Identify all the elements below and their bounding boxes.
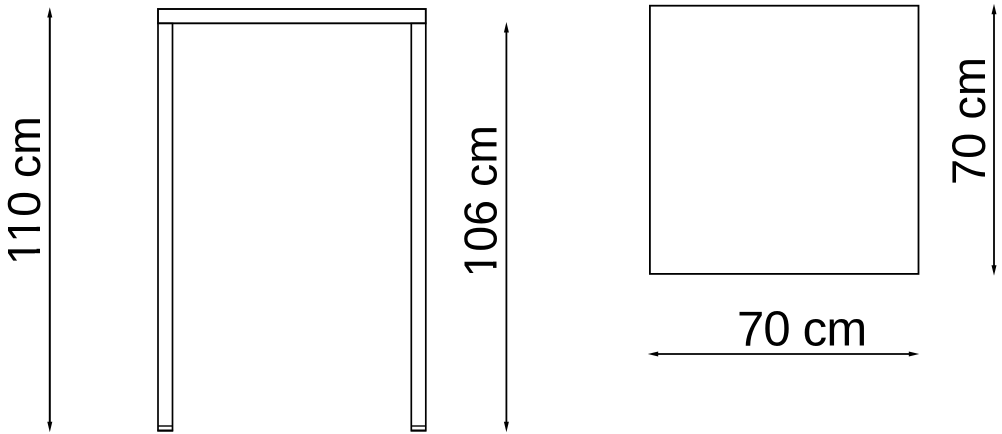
svg-text:110 cm: 110 cm <box>0 116 50 265</box>
svg-text:70 cm: 70 cm <box>737 303 866 357</box>
svg-text:70 cm: 70 cm <box>942 57 995 185</box>
svg-text:106 cm: 106 cm <box>455 125 507 277</box>
